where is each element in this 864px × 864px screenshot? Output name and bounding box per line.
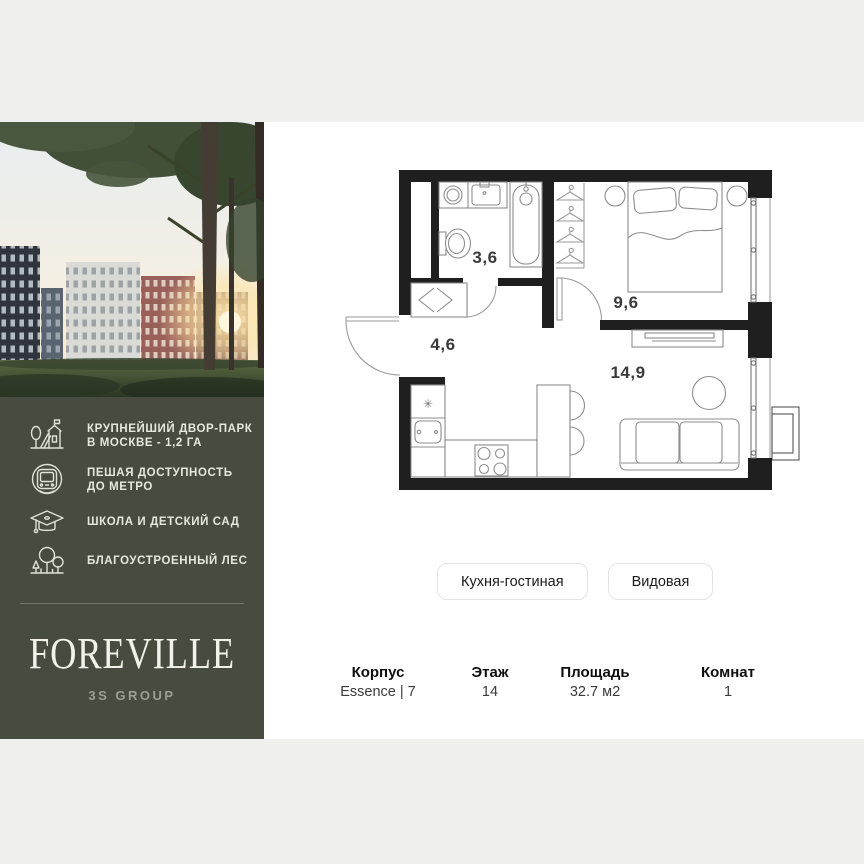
feature-item-school: ШКОЛА И ДЕТСКИЙ САД <box>28 500 254 544</box>
bed <box>605 182 747 292</box>
feature-item-forest: БЛАГОУСТРОЕННЫЙ ЛЕС <box>28 539 254 583</box>
brand-panel: КРУПНЕЙШИЙ ДВОР-ПАРК В МОСКВЕ - 1,2 ГА П… <box>0 122 264 739</box>
feature-item-park: КРУПНЕЙШИЙ ДВОР-ПАРК В МОСКВЕ - 1,2 ГА <box>28 414 254 458</box>
balcony <box>772 407 799 460</box>
detail-area: Площадь 32.7 м2 <box>560 664 629 700</box>
room-area-label-hallway: 4,6 <box>430 335 455 355</box>
feature-text: ПЕШАЯ ДОСТУПНОСТЬ ДО МЕТРО <box>87 466 233 494</box>
detail-floor-value: 14 <box>472 684 509 700</box>
washbasin-counter <box>439 182 507 208</box>
feature-item-metro: ПЕШАЯ ДОСТУПНОСТЬ ДО МЕТРО <box>28 458 254 502</box>
tags-row: Кухня-гостиная Видовая <box>437 563 713 600</box>
room-area-label-kitchen-living: 14,9 <box>610 363 645 383</box>
tag-kitchen-living[interactable]: Кухня-гостиная <box>437 563 588 600</box>
window-living <box>751 358 756 458</box>
brand-logo-text: FOREVILLE <box>29 629 235 678</box>
bathtub <box>510 182 542 267</box>
graduation-cap-icon <box>28 503 66 541</box>
detail-building-label: Корпус <box>340 664 416 681</box>
metro-icon <box>28 461 66 499</box>
detail-rooms-label: Комнат <box>701 664 755 681</box>
stove <box>445 440 537 477</box>
toilet <box>439 229 471 258</box>
brand-logo: FOREVILLE <box>0 628 264 680</box>
tv-console <box>632 330 723 347</box>
bedroom-door <box>557 278 602 320</box>
window-bedroom <box>751 198 756 302</box>
detail-rooms: Комнат 1 <box>701 664 755 700</box>
feature-text: БЛАГОУСТРОЕННЫЙ ЛЕС <box>87 554 247 568</box>
forest-icon <box>28 542 66 580</box>
room-area-label-bedroom: 9,6 <box>613 293 638 313</box>
wardrobe-hangers <box>556 183 584 268</box>
sofa <box>620 419 739 470</box>
entrance-door <box>346 317 400 375</box>
detail-building-value: Essence | 7 <box>340 684 416 700</box>
kitchen-island <box>537 385 570 477</box>
room-area-label-bathroom: 3,6 <box>472 248 497 268</box>
listing-card: КРУПНЕЙШИЙ ДВОР-ПАРК В МОСКВЕ - 1,2 ГА П… <box>0 122 864 739</box>
detail-floor-label: Этаж <box>472 664 509 681</box>
detail-area-label: Площадь <box>560 664 629 681</box>
coffee-table <box>693 377 726 410</box>
complex-photo <box>0 122 264 397</box>
developer-name: 3S GROUP <box>0 688 264 703</box>
bar-stools <box>570 391 585 455</box>
feature-text: ШКОЛА И ДЕТСКИЙ САД <box>87 515 240 529</box>
floor-plan: ✳ <box>330 150 820 520</box>
complex-render-image <box>0 122 264 397</box>
hallway-wardrobe <box>411 283 467 317</box>
detail-building: Корпус Essence | 7 <box>340 664 416 700</box>
divider <box>20 603 244 604</box>
detail-floor: Этаж 14 <box>472 664 509 700</box>
park-icon <box>28 417 66 455</box>
detail-rooms-value: 1 <box>701 684 755 700</box>
fridge-symbol: ✳ <box>423 397 433 411</box>
feature-text: КРУПНЕЙШИЙ ДВОР-ПАРК В МОСКВЕ - 1,2 ГА <box>87 422 252 450</box>
detail-area-value: 32.7 м2 <box>560 684 629 700</box>
tag-view[interactable]: Видовая <box>608 563 714 600</box>
